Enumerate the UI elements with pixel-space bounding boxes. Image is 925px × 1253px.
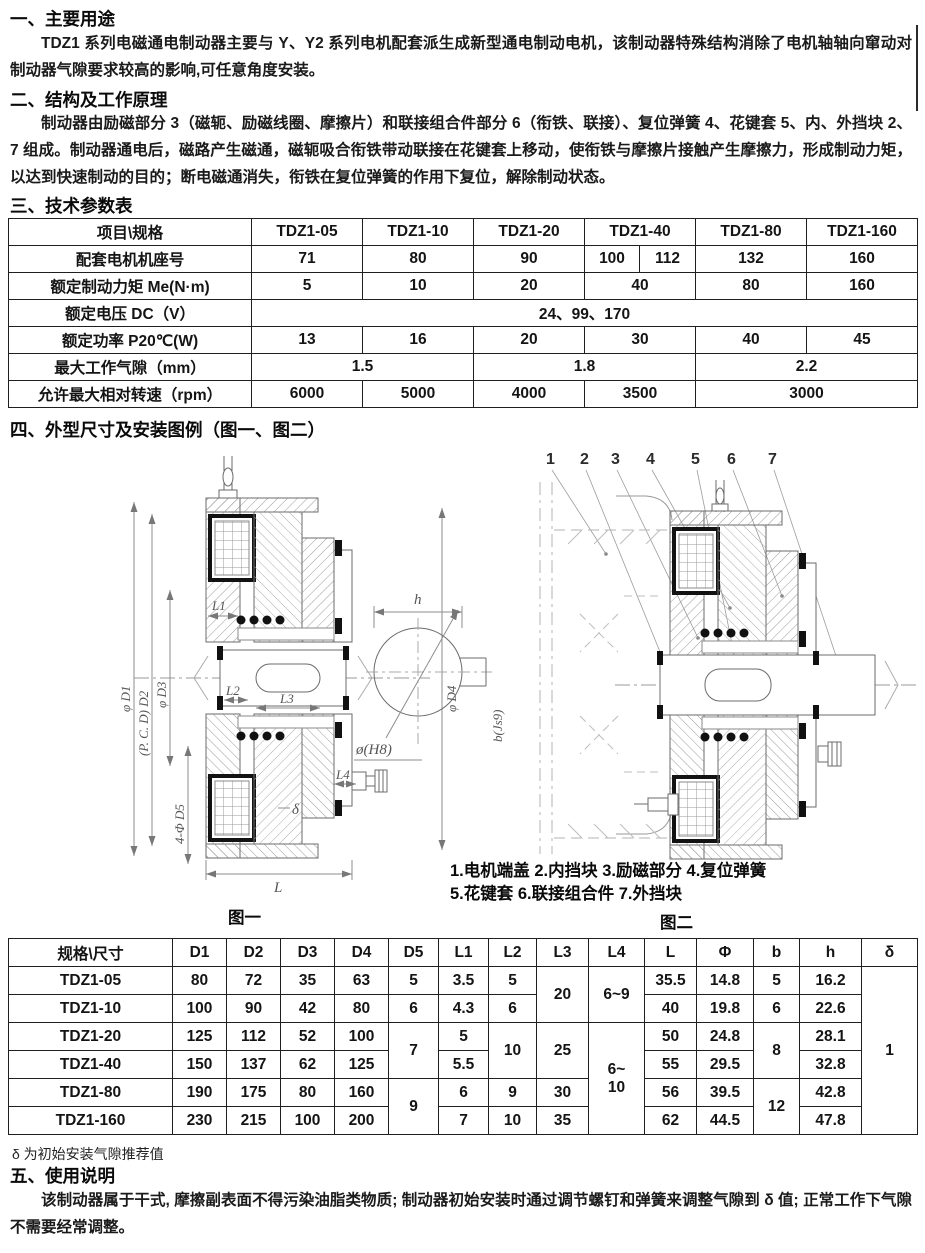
cell: 22.6 [800,995,862,1023]
keyway-slot [256,664,320,692]
cell: 5 [439,1023,489,1051]
dim-label-bore: ø(H8) [355,742,392,758]
figure2-installation-drawing: 1 2 3 4 5 6 7 [520,446,925,864]
col-header: D4 [335,939,389,967]
cell: 40 [696,327,807,354]
cell: 6~ 10 [589,1023,645,1135]
cell: 3.5 [439,967,489,995]
cell: 160 [807,273,918,300]
cell: 137 [227,1051,281,1079]
cell: 80 [696,273,807,300]
col-header: TDZ1-20 [474,219,585,246]
cell: 71 [252,246,363,273]
cell: 72 [227,967,281,995]
col-header: δ [862,939,918,967]
cell: 20 [474,327,585,354]
cell: 6 [389,995,439,1023]
cell: 8 [754,1023,800,1079]
cell: 100 [281,1107,335,1135]
col-header: D5 [389,939,439,967]
cell: 6 [439,1079,489,1107]
params-row-frame: 配套电机机座号 71 80 90 100 112 132 160 [9,246,918,273]
cell: 14.8 [697,967,754,995]
cell: 35 [537,1107,589,1135]
adjusting-screw [352,770,387,792]
cell: 5000 [363,381,474,408]
cell: 230 [173,1107,227,1135]
col-header: L2 [489,939,537,967]
dim-label-d4: φ D4 [444,685,459,712]
callout-3: 3 [611,451,620,468]
cell: 100 [335,1023,389,1051]
cell: 42.8 [800,1079,862,1107]
row-label: TDZ1-10 [9,995,173,1023]
params-row-torque: 额定制动力矩 Me(N·m) 5 10 20 40 80 160 [9,273,918,300]
row-label: TDZ1-80 [9,1079,173,1107]
adjusting-screw [634,794,678,815]
cell: 80 [335,995,389,1023]
cell: 19.8 [697,995,754,1023]
col-header: L4 [589,939,645,967]
col-header: h [800,939,862,967]
cell: 40 [585,273,696,300]
cell: 10 [363,273,474,300]
params-row-gap: 最大工作气隙（mm） 1.5 1.8 2.2 [9,354,918,381]
row-label: TDZ1-160 [9,1107,173,1135]
cell: 10 [489,1023,537,1079]
lead-wires [712,480,728,512]
col-header: b [754,939,800,967]
dims-row-tdz1-80: TDZ1-80 190 175 80 160 9 6 9 30 56 39.5 … [9,1079,918,1107]
caption-line2: 5.花键套 6.联接组合件 7.外挡块 [450,883,766,906]
cell: 24.8 [697,1023,754,1051]
shaft-section [615,651,920,719]
cell: 30 [537,1079,589,1107]
dimensions-table: 规格\尺寸 D1 D2 D3 D4 D5 L1 L2 L3 L4 L Φ b h… [8,938,918,1135]
dim-label-l1: L1 [211,598,226,613]
dim-label-d3: φ D3 [154,681,169,708]
cell: 100 [585,246,640,273]
dims-row-tdz1-10: TDZ1-10 100 90 42 80 6 4.3 6 40 19.8 6 2… [9,995,918,1023]
dim-label-delta: δ [292,802,300,818]
row-label: TDZ1-40 [9,1051,173,1079]
cell: 80 [173,967,227,995]
cell: 50 [645,1023,697,1051]
row-label: 配套电机机座号 [9,246,252,273]
section1-heading: 一、主要用途 [10,6,115,31]
cell: 2.2 [696,354,918,381]
cell: 1.8 [474,354,696,381]
row-label: 额定电压 DC（V） [9,300,252,327]
col-header: TDZ1-10 [363,219,474,246]
params-row-voltage: 额定电压 DC（V） 24、99、170 [9,300,918,327]
cell: 215 [227,1107,281,1135]
dims-header-row: 规格\尺寸 D1 D2 D3 D4 D5 L1 L2 L3 L4 L Φ b h… [9,939,918,967]
cell: 35 [281,967,335,995]
cell: 5 [252,273,363,300]
col-header: 项目\规格 [9,219,252,246]
cell: 5 [754,967,800,995]
cell: 25 [537,1023,589,1079]
cell: 3500 [585,381,696,408]
col-header: D3 [281,939,335,967]
figure1-label: 图一 [228,904,261,928]
dim-label-h: h [414,592,422,608]
cell: 90 [227,995,281,1023]
dims-row-tdz1-05: TDZ1-05 80 72 35 63 5 3.5 5 20 6~9 35.5 … [9,967,918,995]
section3-heading: 三、技术参数表 [10,193,133,218]
col-header: Φ [697,939,754,967]
figure1-brake-cross-section: φ D1 (P. C. D) D2 φ D3 4-Φ D5 φ D4 L1 L2… [88,450,518,912]
row-label: 额定制动力矩 Me(N·m) [9,273,252,300]
callout-7: 7 [768,451,777,468]
cell: 200 [335,1107,389,1135]
col-header: TDZ1-80 [696,219,807,246]
col-header: D1 [173,939,227,967]
section2-paragraph: 制动器由励磁部分 3（磁轭、励磁线圈、摩擦片）和联接组合件部分 6（衔铁、联接）… [10,110,912,191]
cell: 12 [754,1079,800,1135]
cell: 1 [862,967,918,1135]
cell: 125 [335,1051,389,1079]
col-header: D2 [227,939,281,967]
cell: 7 [389,1023,439,1079]
cell: 55 [645,1051,697,1079]
cell: 62 [281,1051,335,1079]
cell: 35.5 [645,967,697,995]
cell: 5 [389,967,439,995]
cell: 20 [537,967,589,1023]
row-label: TDZ1-05 [9,967,173,995]
cell: 29.5 [697,1051,754,1079]
cell: 90 [474,246,585,273]
document-page: 一、主要用途 TDZ1 系列电磁通电制动器主要与 Y、Y2 系列电机配套派生成新… [0,0,925,1253]
col-header: TDZ1-05 [252,219,363,246]
lead-wires [219,456,237,498]
cell: 5.5 [439,1051,489,1079]
cell: 6 [754,995,800,1023]
col-header: L3 [537,939,589,967]
row-label: 额定功率 P20℃(W) [9,327,252,354]
dim-label-key: b(Js9) [490,710,505,743]
caption-line1: 1.电机端盖 2.内挡块 3.励磁部分 4.复位弹簧 [450,860,766,883]
cell: 6000 [252,381,363,408]
col-header: L [645,939,697,967]
row-label: TDZ1-20 [9,1023,173,1051]
cell: 6 [489,995,537,1023]
cell: 80 [363,246,474,273]
section1-paragraph: TDZ1 系列电磁通电制动器主要与 Y、Y2 系列电机配套派生成新型通电制动电机… [10,30,912,84]
callout-1: 1 [546,451,555,468]
cell: 125 [173,1023,227,1051]
callout-6: 6 [727,451,736,468]
cell: 9 [389,1079,439,1135]
cell: 160 [335,1079,389,1107]
params-row-speed: 允许最大相对转速（rpm） 6000 5000 4000 3500 3000 [9,381,918,408]
dims-footnote: δ 为初始安装气隙推荐值 [12,1144,164,1164]
cell: 24、99、170 [252,300,918,327]
brake-upper-section [206,498,352,642]
cell: 190 [173,1079,227,1107]
cell: 32.8 [800,1051,862,1079]
cell: 62 [645,1107,697,1135]
cell: 3000 [696,381,918,408]
section2-heading: 二、结构及工作原理 [10,87,168,112]
cell: 63 [335,967,389,995]
mounting-bolt [818,742,841,766]
cell: 112 [640,246,696,273]
params-header-row: 项目\规格 TDZ1-05 TDZ1-10 TDZ1-20 TDZ1-40 TD… [9,219,918,246]
dim-label-l4: L4 [335,767,350,782]
cell: 100 [173,995,227,1023]
dim-label-d5: 4-Φ D5 [172,804,187,844]
dim-label-d1: φ D1 [118,686,133,712]
cell: 56 [645,1079,697,1107]
dim-label-d2: (P. C. D) D2 [136,690,151,756]
cell: 20 [474,273,585,300]
cell: 175 [227,1079,281,1107]
col-header: 规格\尺寸 [9,939,173,967]
cell: 47.8 [800,1107,862,1135]
dim-label-l2: L2 [225,683,240,698]
cell: 4000 [474,381,585,408]
cell: 52 [281,1023,335,1051]
cell: 150 [173,1051,227,1079]
cell: 6~9 [589,967,645,1023]
cell: 30 [585,327,696,354]
callout-5: 5 [691,451,700,468]
cell: 16.2 [800,967,862,995]
section5-paragraph: 该制动器属于干式, 摩擦副表面不得污染油脂类物质; 制动器初始安装时通过调节螺钉… [10,1187,912,1241]
cell: 44.5 [697,1107,754,1135]
cell: 132 [696,246,807,273]
cell: 40 [645,995,697,1023]
cell: 42 [281,995,335,1023]
dim-label-l: L [273,880,282,896]
dim-label-l3: L3 [279,691,294,706]
col-header: TDZ1-40 [585,219,696,246]
callout-2: 2 [580,451,589,468]
cell: 28.1 [800,1023,862,1051]
callout-4: 4 [646,451,655,468]
section4-heading: 四、外型尺寸及安装图例（图一、图二） [10,417,325,442]
col-header: L1 [439,939,489,967]
cell: 16 [363,327,474,354]
cell: 13 [252,327,363,354]
cell: 5 [489,967,537,995]
figure2-label: 图二 [660,909,693,933]
col-header: TDZ1-160 [807,219,918,246]
cell: 45 [807,327,918,354]
cell: 39.5 [697,1079,754,1107]
section5-heading: 五、使用说明 [10,1163,115,1188]
row-label: 允许最大相对转速（rpm） [9,381,252,408]
parameters-table: 项目\规格 TDZ1-05 TDZ1-10 TDZ1-20 TDZ1-40 TD… [8,218,918,408]
cell: 1.5 [252,354,474,381]
params-row-power: 额定功率 P20℃(W) 13 16 20 30 40 45 [9,327,918,354]
cell: 160 [807,246,918,273]
cell: 10 [489,1107,537,1135]
cell: 7 [439,1107,489,1135]
cell: 80 [281,1079,335,1107]
page-edge-mark [916,25,918,111]
cell: 4.3 [439,995,489,1023]
cell: 112 [227,1023,281,1051]
cell: 9 [489,1079,537,1107]
shaft-bore-detail: h ø(H8) b(Js9) [354,592,505,760]
figure2-caption: 1.电机端盖 2.内挡块 3.励磁部分 4.复位弹簧 5.花键套 6.联接组合件… [450,860,766,906]
keyway-slot [705,669,771,701]
dims-row-tdz1-20: TDZ1-20 125 112 52 100 7 5 10 25 6~ 10 5… [9,1023,918,1051]
row-label: 最大工作气隙（mm） [9,354,252,381]
